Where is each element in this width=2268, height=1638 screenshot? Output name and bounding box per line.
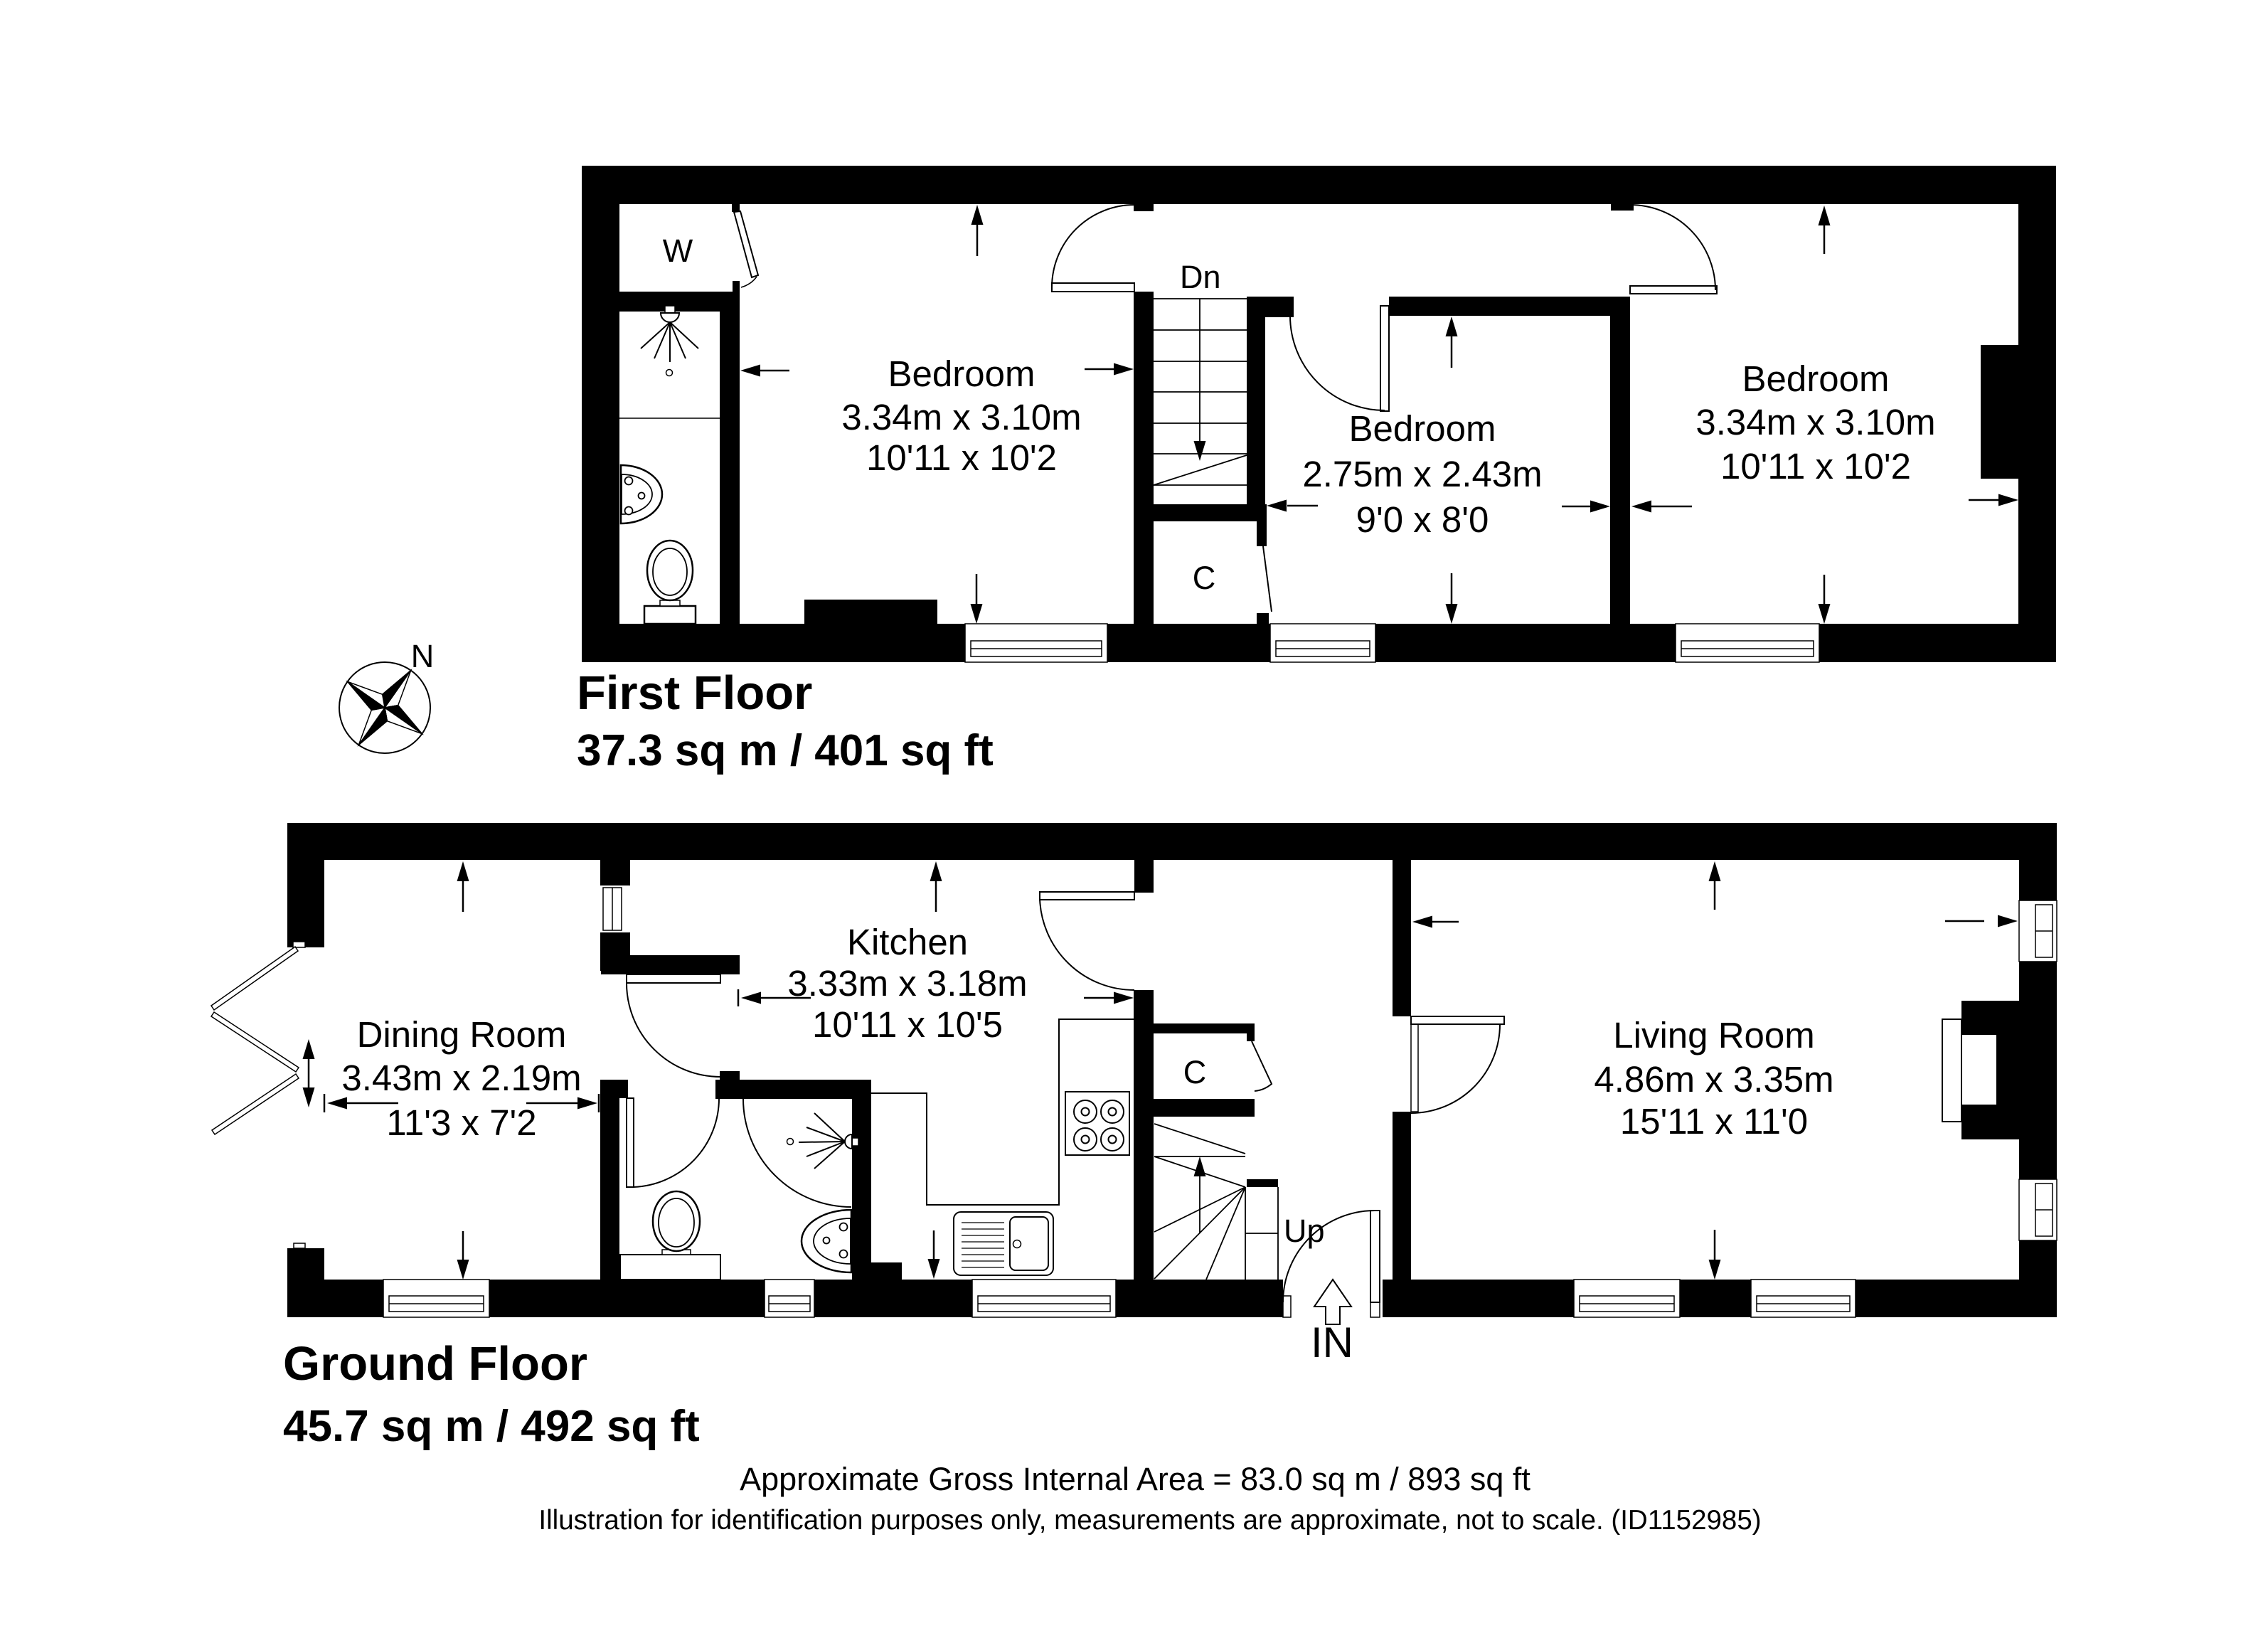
svg-text:3.43m x 2.19m: 3.43m x 2.19m bbox=[341, 1058, 581, 1098]
svg-text:10'11 x 10'5: 10'11 x 10'5 bbox=[812, 1004, 1003, 1045]
svg-text:First Floor: First Floor bbox=[577, 666, 812, 720]
svg-text:37.3 sq m / 401 sq ft: 37.3 sq m / 401 sq ft bbox=[577, 726, 994, 775]
svg-text:10'11 x 10'2: 10'11 x 10'2 bbox=[866, 437, 1057, 478]
svg-text:Bedroom: Bedroom bbox=[1742, 358, 1890, 399]
svg-text:9'0 x 8'0: 9'0 x 8'0 bbox=[1356, 499, 1489, 540]
svg-text:Living Room: Living Room bbox=[1613, 1015, 1814, 1055]
svg-text:45.7 sq m / 492 sq ft: 45.7 sq m / 492 sq ft bbox=[283, 1402, 700, 1451]
svg-text:Ground Floor: Ground Floor bbox=[283, 1337, 587, 1390]
svg-text:Up: Up bbox=[1284, 1213, 1325, 1249]
svg-text:3.34m x 3.10m: 3.34m x 3.10m bbox=[841, 397, 1081, 437]
svg-text:Dining Room: Dining Room bbox=[357, 1014, 567, 1055]
svg-text:Kitchen: Kitchen bbox=[847, 922, 968, 962]
svg-text:Bedroom: Bedroom bbox=[1349, 408, 1496, 449]
svg-text:Dn: Dn bbox=[1180, 259, 1221, 295]
svg-text:3.33m x 3.18m: 3.33m x 3.18m bbox=[787, 963, 1027, 1004]
svg-text:4.86m x 3.35m: 4.86m x 3.35m bbox=[1594, 1059, 1833, 1100]
svg-text:N: N bbox=[411, 638, 435, 674]
svg-text:Illustration for identificatio: Illustration for identification purposes… bbox=[538, 1505, 1761, 1536]
svg-text:10'11 x 10'2: 10'11 x 10'2 bbox=[1720, 446, 1911, 486]
svg-text:15'11 x 11'0: 15'11 x 11'0 bbox=[1620, 1101, 1808, 1142]
svg-text:3.34m x 3.10m: 3.34m x 3.10m bbox=[1695, 402, 1935, 442]
svg-text:Bedroom: Bedroom bbox=[888, 353, 1035, 394]
svg-text:W: W bbox=[663, 233, 693, 269]
svg-text:C: C bbox=[1183, 1054, 1207, 1090]
svg-text:11'3 x 7'2: 11'3 x 7'2 bbox=[386, 1102, 536, 1143]
svg-text:IN: IN bbox=[1311, 1319, 1353, 1366]
svg-text:C: C bbox=[1193, 560, 1216, 596]
svg-text:Approximate Gross Internal Are: Approximate Gross Internal Area = 83.0 s… bbox=[740, 1461, 1530, 1497]
svg-text:2.75m x 2.43m: 2.75m x 2.43m bbox=[1302, 454, 1542, 494]
